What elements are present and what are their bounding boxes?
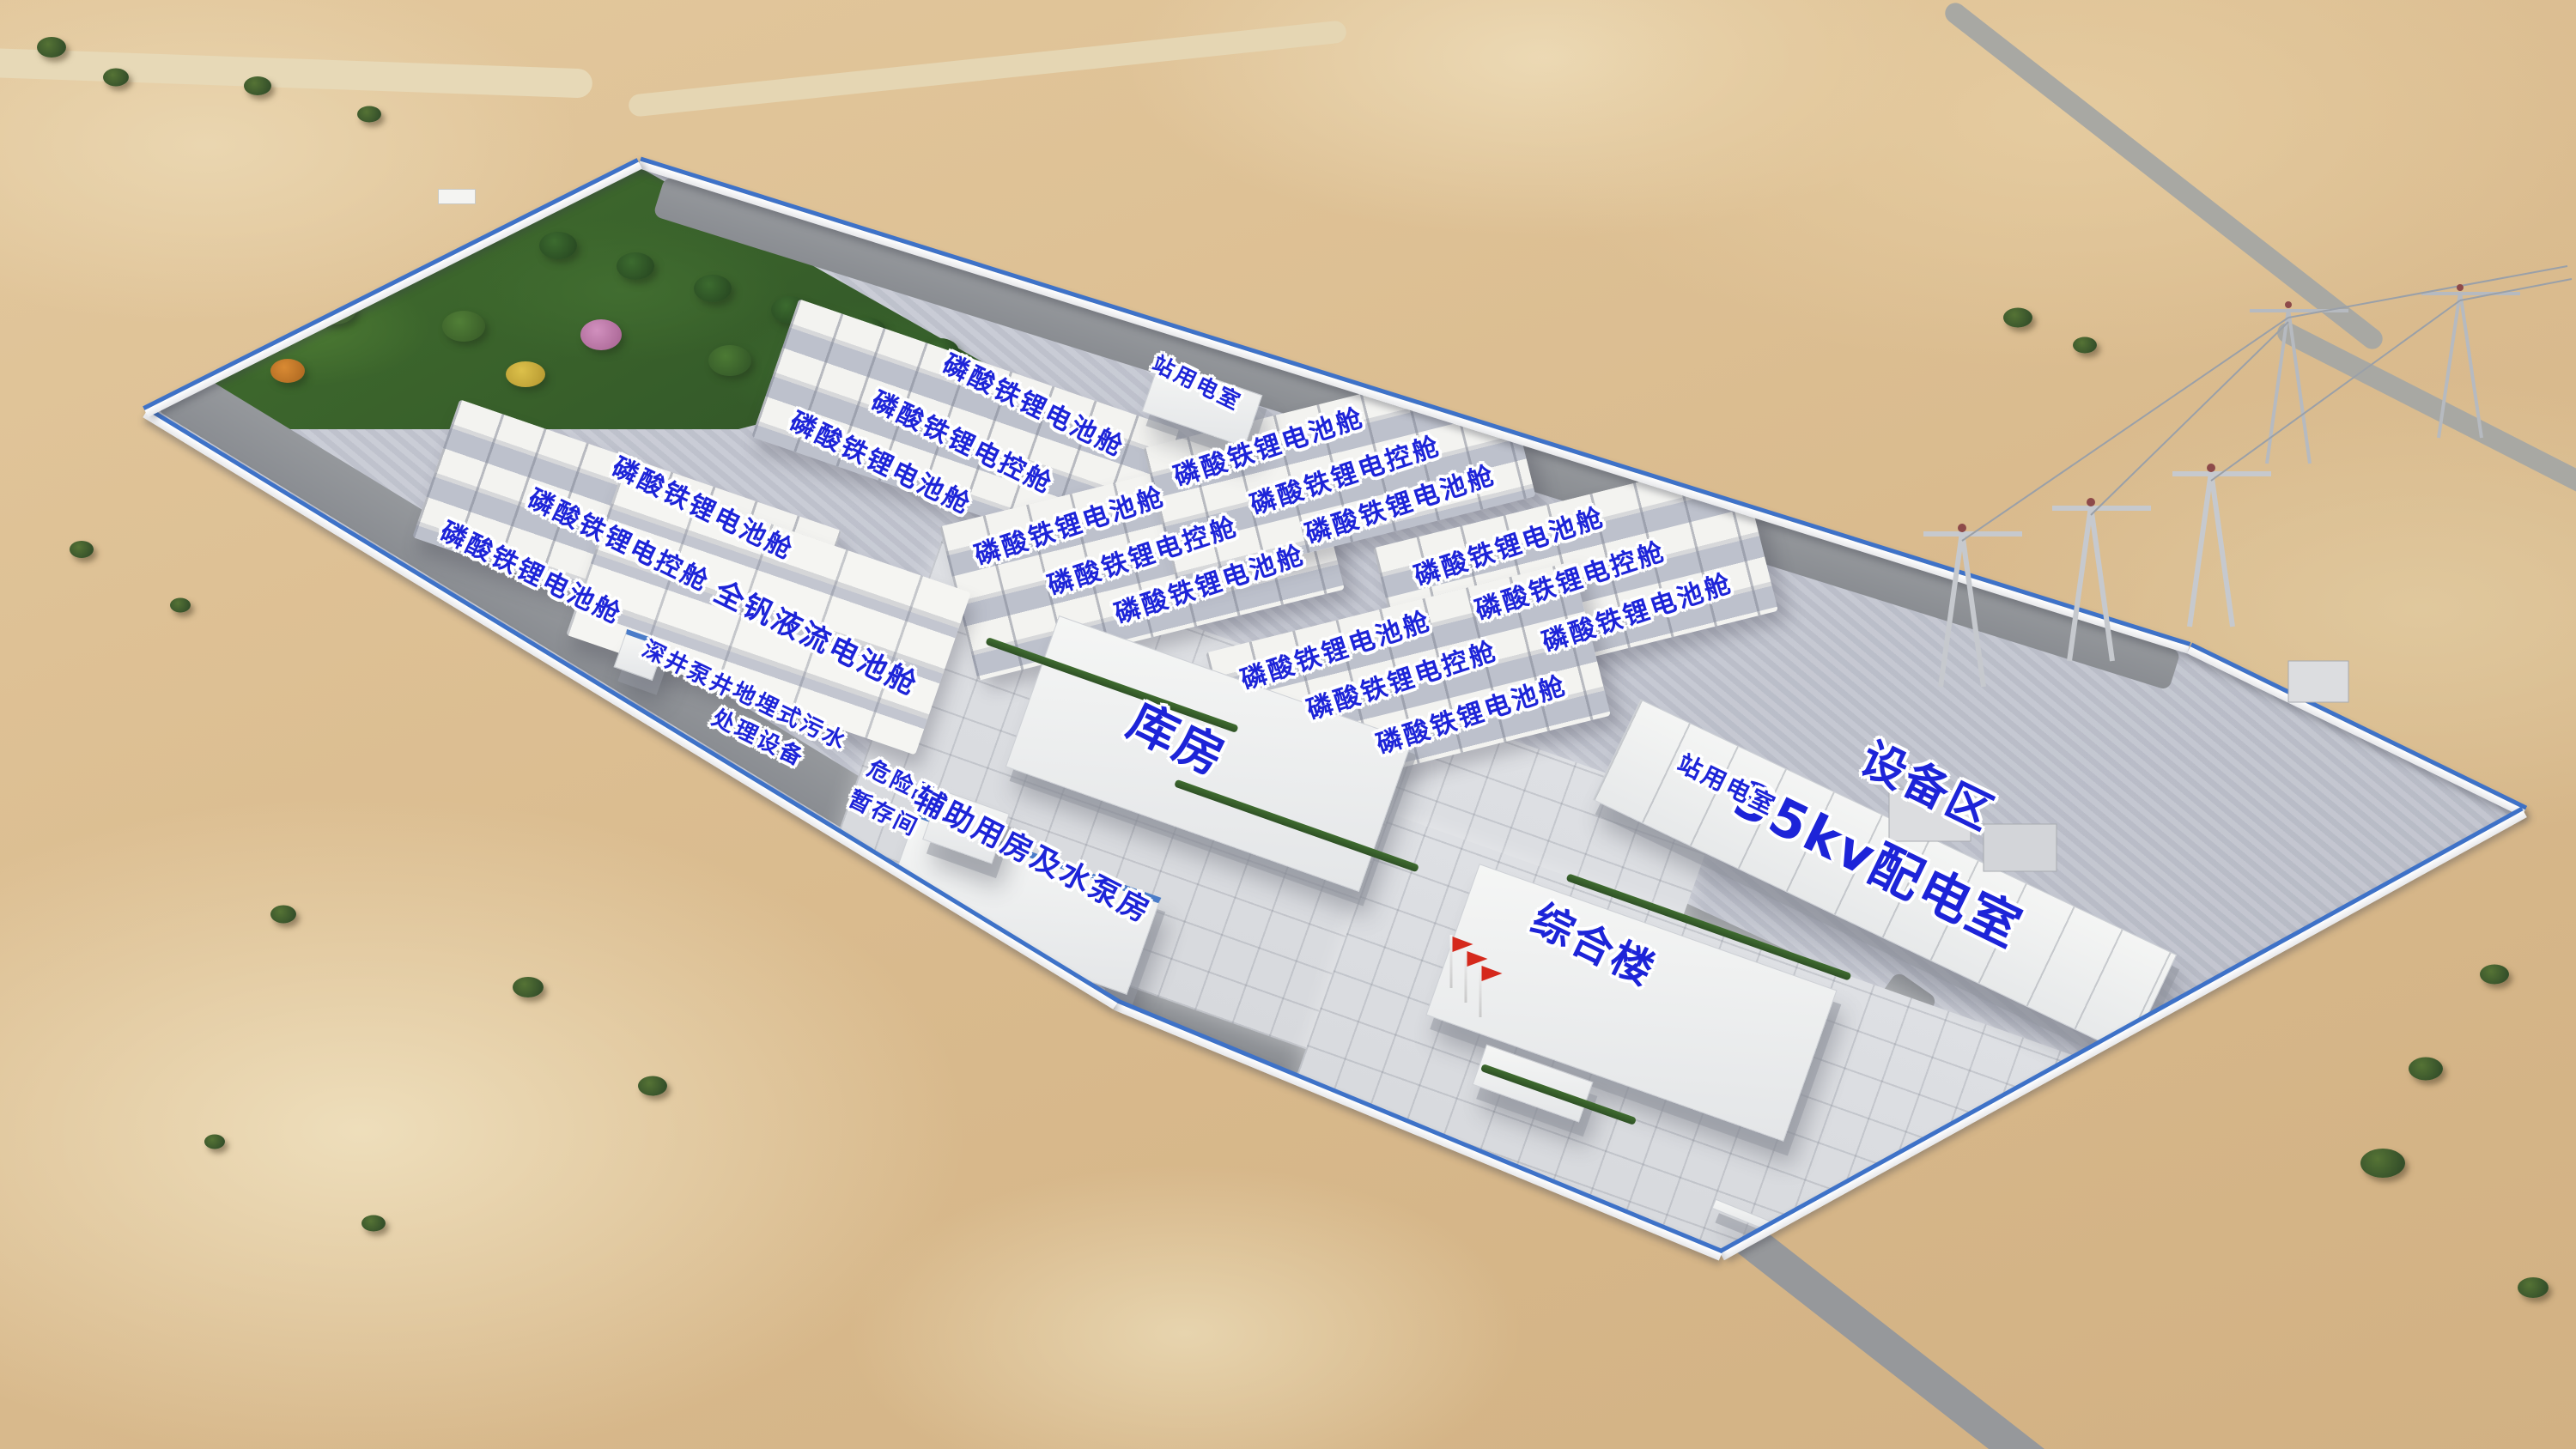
power-lines	[1962, 266, 2572, 541]
substation-equipment-area	[1786, 258, 2576, 1030]
pine-tree	[617, 252, 654, 280]
red-flag	[1450, 935, 1453, 988]
shrub	[70, 541, 94, 558]
flag-cloth	[1453, 937, 1473, 952]
shrub	[170, 598, 191, 613]
tree	[244, 76, 271, 95]
tree	[37, 37, 66, 58]
tree	[2518, 1277, 2549, 1298]
shrub	[638, 1076, 667, 1096]
aerial-site-rendering: 站用电室 磷酸铁锂电池舱 磷酸铁锂电控舱 磷酸铁锂电池舱 磷酸铁锂电池舱 磷酸铁…	[0, 0, 2576, 1449]
tree	[708, 345, 751, 376]
tree	[2409, 1058, 2443, 1081]
shrub	[361, 1216, 386, 1232]
flag-cloth	[1482, 966, 1503, 981]
shrub	[513, 977, 544, 997]
tree	[2360, 1149, 2405, 1178]
tree	[103, 69, 129, 87]
yellow-flower-patch	[506, 361, 545, 387]
orange-foliage	[270, 359, 305, 383]
tree	[442, 311, 485, 342]
shrub	[270, 906, 296, 924]
pink-blossom-tree	[580, 319, 622, 350]
shrub	[204, 1135, 225, 1149]
flag-cloth	[1467, 951, 1488, 967]
insulators	[1958, 284, 2464, 532]
distant-building	[438, 189, 476, 204]
red-flag	[1465, 949, 1467, 1003]
lattice-gantry	[1923, 472, 2271, 687]
pine-tree	[694, 275, 732, 302]
pine-tree	[539, 232, 577, 259]
tree	[357, 106, 381, 123]
red-flag	[1479, 964, 1482, 1017]
